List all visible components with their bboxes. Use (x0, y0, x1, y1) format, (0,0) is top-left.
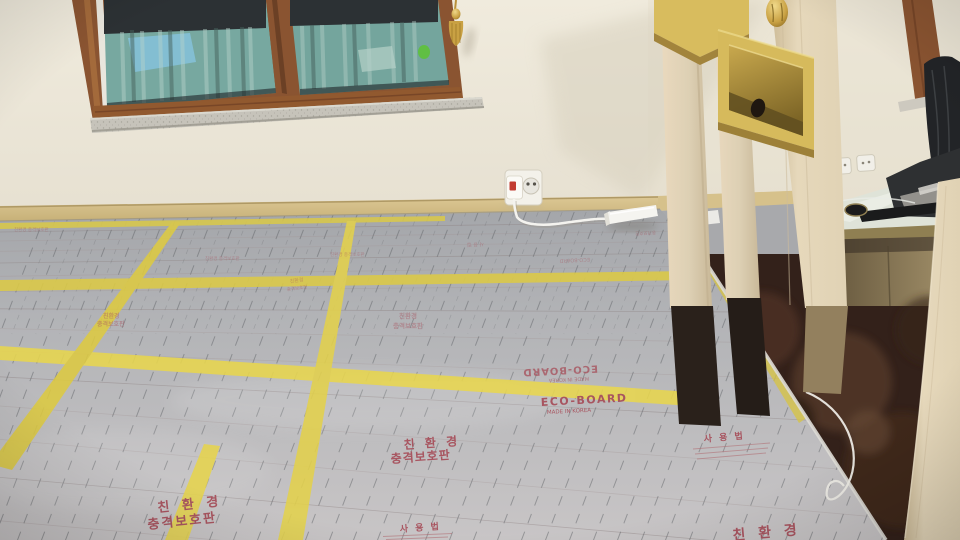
room-photo: ECO-BOARD MADE IN KOREA ECO-BOARD MADE I… (0, 0, 960, 540)
room-photo-svg: ECO-BOARD MADE IN KOREA ECO-BOARD MADE I… (0, 0, 960, 540)
vignette (0, 0, 960, 540)
